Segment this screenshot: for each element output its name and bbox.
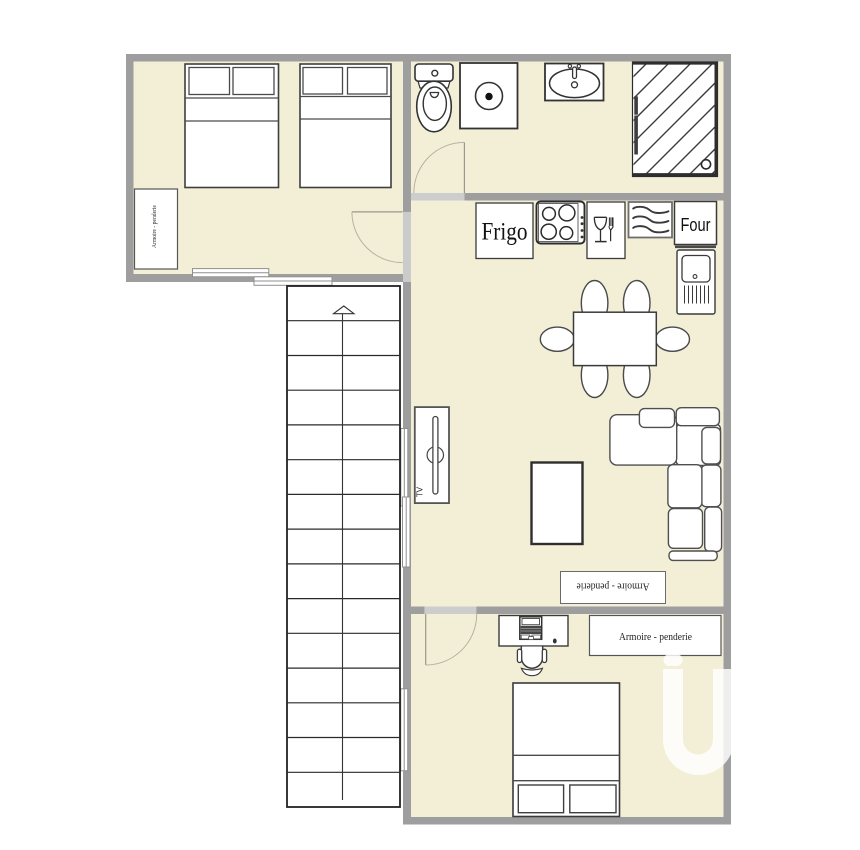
svg-text:Armoire - penderie: Armoire - penderie <box>619 632 692 643</box>
svg-text:Four: Four <box>681 214 711 235</box>
svg-text:Armoire - penderie: Armoire - penderie <box>151 205 158 248</box>
svg-text:TV: TV <box>416 486 425 497</box>
svg-text:Armoire - penderie: Armoire - penderie <box>576 581 649 592</box>
svg-text:Frigo: Frigo <box>482 219 528 246</box>
